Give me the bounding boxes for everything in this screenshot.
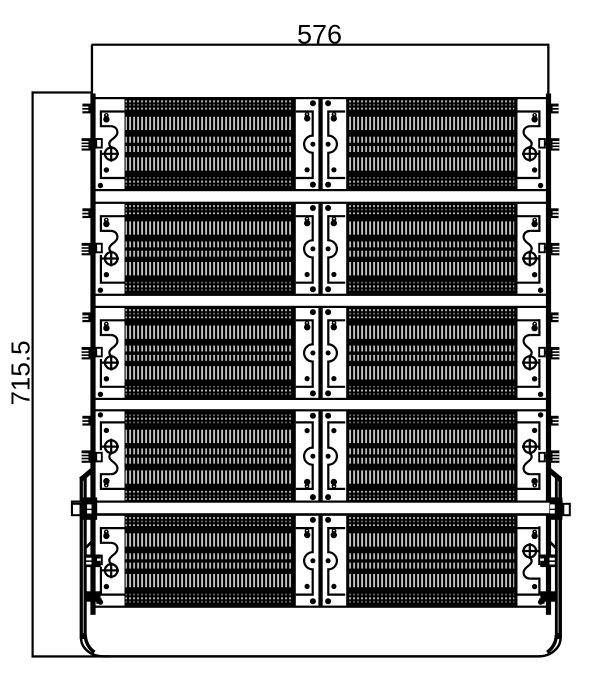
svg-text:576: 576 bbox=[297, 19, 342, 49]
svg-text:715.5: 715.5 bbox=[5, 340, 35, 405]
